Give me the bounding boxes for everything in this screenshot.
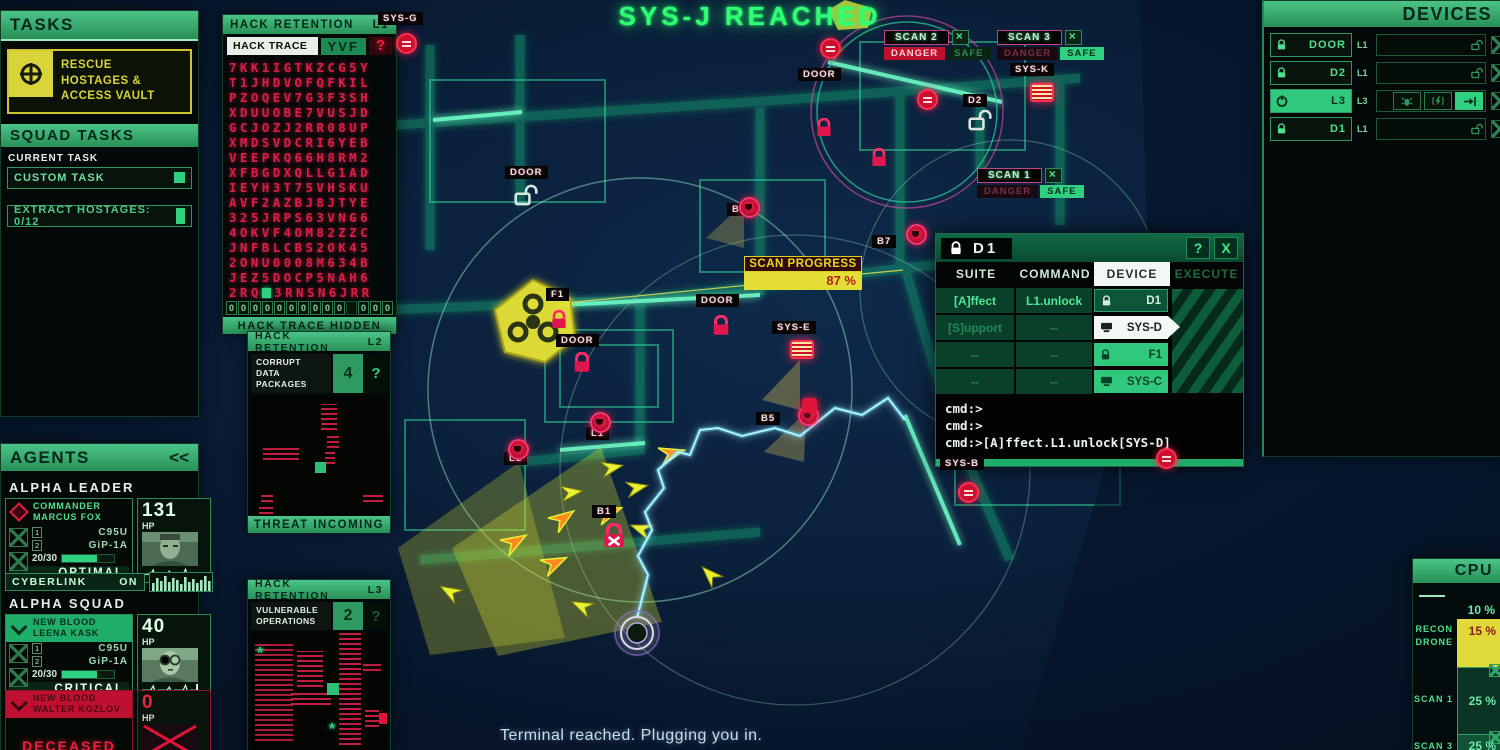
cpu-panel: CPU 10 % RECON DRONE 15 % SCAN 1 25 % SC… — [1412, 558, 1500, 750]
server-icon[interactable] — [790, 340, 814, 359]
current-task-label: CURRENT TASK — [1, 147, 198, 164]
map-label: B5 — [756, 412, 780, 425]
lock-icon[interactable] — [549, 310, 569, 330]
scan-marker-1: SCAN 1 DANGERSAFE — [977, 168, 1084, 198]
bug-action-button[interactable] — [1393, 92, 1421, 110]
lock-icon — [1276, 67, 1287, 79]
device-dialog: D1 ? X SUITE COMMAND DEVICE EXECUTE [A]f… — [935, 233, 1244, 467]
device-option-sys-d[interactable]: SYS-D — [1094, 316, 1168, 339]
close-icon[interactable] — [952, 30, 969, 45]
weapon-1[interactable]: C95U — [98, 527, 128, 538]
bug-icon — [1401, 96, 1413, 107]
close-icon[interactable] — [1065, 30, 1082, 45]
ammo-count: 20/30 — [32, 669, 57, 680]
scan-label: SCAN 1 — [977, 168, 1042, 183]
close-icon[interactable] — [1491, 120, 1500, 138]
ammo-bar — [61, 554, 115, 563]
bolt-icon — [1431, 95, 1445, 107]
task-progress-pip — [176, 208, 185, 224]
agent-status: DECEASED — [22, 738, 116, 750]
lock-icon — [1101, 295, 1112, 307]
vulnerable-marker: * — [329, 721, 335, 739]
extract-hostages-label: EXTRACT HOSTAGES: 0/12 — [14, 204, 176, 228]
lock-icon[interactable] — [814, 118, 834, 138]
alert-device-icon[interactable] — [396, 33, 417, 54]
scan-progress-value: 87 % — [744, 272, 862, 290]
suite-option[interactable]: [S]upport — [936, 315, 1014, 340]
safe-toggle[interactable]: SAFE — [1040, 185, 1083, 198]
close-icon[interactable] — [1491, 92, 1500, 110]
camera-icon[interactable] — [508, 439, 529, 460]
squad-rank-icon — [11, 618, 28, 635]
alert-device-icon[interactable] — [958, 482, 979, 503]
weapon-2[interactable]: GiP-1A — [89, 540, 128, 551]
cpu-idle-value: 10 % — [1457, 599, 1499, 617]
device-action-bar — [1376, 34, 1486, 56]
lock-icon — [1276, 39, 1287, 51]
alpha-leader-label: ALPHA LEADER — [9, 480, 134, 495]
safe-toggle[interactable]: SAFE — [1060, 47, 1103, 60]
cyberlink-histogram — [149, 572, 213, 592]
tab-suite[interactable]: SUITE — [936, 267, 1016, 281]
power-icon — [1276, 95, 1288, 107]
scan-label: SCAN 2 — [884, 30, 949, 45]
device-row-d2: D2 L1 — [1270, 61, 1500, 85]
extract-hostages-task[interactable]: EXTRACT HOSTAGES: 0/12 — [7, 205, 192, 227]
close-button[interactable]: X — [1214, 237, 1238, 259]
screen-icon — [1100, 376, 1113, 387]
trace-slot-row: 00 00 00 00 00 0 00 — [223, 299, 396, 317]
hp-value: 131 — [142, 500, 177, 521]
danger-toggle[interactable]: DANGER — [884, 47, 945, 60]
cpu-row-value: 25 % — [1457, 734, 1500, 750]
lock-icon — [1276, 123, 1287, 135]
open-lock-icon[interactable] — [1471, 67, 1483, 80]
close-icon[interactable] — [1491, 36, 1500, 54]
alpha-squad-label: ALPHA SQUAD — [9, 596, 126, 611]
suite-option[interactable]: -- — [936, 342, 1014, 367]
camera-icon[interactable] — [739, 197, 760, 218]
command-option[interactable]: -- — [1016, 369, 1092, 394]
hack-trace-value: YVF — [321, 38, 366, 55]
vulnerable-operations-label: VULNERABLE OPERATIONS — [251, 602, 331, 630]
agent-portrait — [142, 532, 198, 566]
cpu-header: CPU — [1413, 559, 1500, 583]
suite-option[interactable]: -- — [936, 369, 1014, 394]
plug-line-glow — [637, 398, 905, 618]
command-terminal: cmd:> cmd:> cmd:>[A]ffect.L1.unlock[SYS-… — [936, 396, 1243, 459]
hack-retention-l2-header: HACK RETENTION L2 — [248, 332, 390, 351]
scan-progress: SCAN PROGRESS 87 % — [744, 256, 862, 290]
open-lock-icon[interactable] — [1471, 39, 1483, 52]
scan-marker-3: SCAN 3 DANGERSAFE — [997, 30, 1104, 60]
hack-trace-grid: 7KK1IGTKZCG5YT1JHDVOFQFKIL PZOQEV7G3F3SH… — [223, 58, 396, 299]
agents-panel: AGENTS << ALPHA LEADER COMMANDERMARCUS F… — [0, 443, 199, 750]
tab-execute[interactable]: EXECUTE — [1170, 267, 1243, 281]
current-task-value: CUSTOM TASK — [14, 172, 105, 184]
map-label: DOOR — [696, 294, 739, 307]
hack-retention-label: HACK RETENTION — [255, 578, 368, 602]
level-badge: L3 — [368, 584, 383, 596]
dialog-titlebar: D1 ? X — [936, 234, 1243, 262]
agent-cell — [327, 683, 339, 695]
equip-slot[interactable] — [9, 552, 28, 571]
device-l3-button[interactable]: L3 — [1270, 89, 1352, 113]
open-lock-icon[interactable] — [968, 108, 992, 134]
main-task-item[interactable]: RESCUE HOSTAGES & ACCESS VAULT — [7, 49, 192, 114]
threat-incoming-footer: THREAT INCOMING — [248, 516, 390, 533]
tab-device[interactable]: DEVICE — [1094, 262, 1170, 286]
equip-slot[interactable] — [9, 644, 28, 663]
map-label: SYS-B — [940, 457, 984, 470]
alert-device-icon[interactable] — [917, 89, 938, 110]
device-row-d1: D1 L1 — [1270, 117, 1500, 141]
hack-retention-l3-header: HACK RETENTION L3 — [248, 580, 390, 599]
data-packet-cell — [315, 462, 326, 473]
hack-trace-row: HACK TRACE YVF ? — [223, 34, 396, 58]
enter-action-button[interactable] — [1455, 92, 1483, 110]
status-message: Terminal reached. Plugging you in. — [500, 727, 762, 745]
suite-option[interactable]: [A]ffect — [936, 288, 1014, 313]
agents-title: AGENTS — [10, 448, 90, 468]
device-level: L1 — [1357, 40, 1371, 50]
hack-retention-l1-panel: HACK RETENTION L1 HACK TRACE YVF ? 7KK1I… — [222, 14, 397, 334]
corrupt-data-grid — [251, 396, 387, 516]
map-label: F1 — [546, 288, 569, 301]
map-label: D2 — [963, 94, 987, 107]
device-level: L1 — [1357, 124, 1371, 134]
scan-label: SCAN 3 — [997, 30, 1062, 45]
main-task-label: RESCUE HOSTAGES & ACCESS VAULT — [53, 51, 190, 112]
agent-portrait — [142, 648, 198, 682]
agent-card-leena[interactable]: NEW BLOODLEENA KASK 1C95U 2GiP-1A 20/30 … — [5, 614, 211, 699]
device-action-bar — [1376, 118, 1486, 140]
execute-hatch-area — [1172, 289, 1243, 393]
objective-target-icon — [9, 51, 53, 97]
hp-label: HP — [142, 521, 155, 531]
open-lock-icon[interactable] — [1471, 123, 1483, 136]
ammo-count: 20/30 — [32, 553, 57, 564]
leader-rank-icon — [9, 502, 29, 522]
command-option[interactable]: -- — [1016, 342, 1092, 367]
corrupt-data-row: CORRUPT DATA PACKAGES 4 ? — [248, 351, 390, 396]
agent-card-marcus[interactable]: COMMANDERMARCUS FOX 1C95U 2GiP-1A 20/30 … — [5, 498, 211, 583]
lock-icon[interactable] — [710, 315, 732, 337]
lock-icon — [949, 241, 963, 256]
map-label: DOOR — [556, 334, 599, 347]
agent-card-walter[interactable]: NEW BLOODWALTER KOZLOV DECEASED 0 HP — [5, 690, 211, 750]
device-level: L3 — [1357, 96, 1371, 106]
help-button[interactable]: ? — [365, 602, 387, 630]
cpu-row-label: SCAN 1 — [1413, 667, 1453, 706]
page-title: SYS-J REACHED — [0, 1, 1500, 32]
vulnerable-marker: * — [257, 645, 263, 663]
device-option-sys-c[interactable]: SYS-C — [1094, 370, 1168, 393]
hack-trace-label: HACK TRACE — [227, 37, 318, 55]
cyberlink-state: ON — [119, 576, 138, 588]
lock-icon — [1100, 349, 1111, 361]
screen-icon — [1100, 322, 1113, 333]
camera-icon[interactable] — [590, 412, 611, 433]
close-icon[interactable] — [1491, 64, 1500, 82]
hack-retention-l2-panel: HACK RETENTION L2 CORRUPT DATA PACKAGES … — [247, 331, 391, 529]
cpu-row-label: RECON DRONE — [1413, 619, 1453, 648]
map-label: DOOR — [798, 68, 841, 81]
agent-portrait-deceased — [142, 724, 198, 750]
weapon-2[interactable]: GiP-1A — [89, 656, 128, 667]
ammo-bar — [61, 670, 115, 679]
scan-progress-label: SCAN PROGRESS — [744, 256, 862, 272]
map-label: SYS-K — [1010, 63, 1054, 76]
lock-icon[interactable] — [869, 148, 889, 168]
terminal-line: cmd:> — [945, 401, 1234, 418]
device-level: L1 — [1357, 68, 1371, 78]
hp-label: HP — [142, 713, 155, 723]
tab-command[interactable]: COMMAND — [1016, 267, 1094, 281]
hp-value: 0 — [142, 692, 154, 713]
device-node-icon[interactable] — [802, 398, 817, 413]
collapse-button[interactable]: << — [169, 448, 189, 468]
player-reticle[interactable] — [615, 611, 659, 655]
current-task-select[interactable]: CUSTOM TASK — [7, 167, 192, 189]
lock-x-icon[interactable] — [601, 523, 627, 549]
device-action-bar — [1376, 62, 1486, 84]
devices-panel: DEVICES DOOR L1 D2 L1 L3 — [1262, 0, 1500, 457]
terminal-line: cmd:> — [945, 418, 1234, 435]
corrupt-data-count: 4 — [333, 354, 363, 393]
power-surge-action-button[interactable] — [1424, 92, 1452, 110]
danger-toggle[interactable]: DANGER — [977, 185, 1038, 198]
edit-icon[interactable] — [174, 172, 185, 183]
map-label: DOOR — [505, 166, 548, 179]
alert-device-icon[interactable] — [1156, 448, 1177, 469]
threat-cell — [379, 713, 387, 724]
danger-toggle[interactable]: DANGER — [997, 47, 1058, 60]
help-button[interactable]: ? — [365, 354, 387, 393]
command-option[interactable]: -- — [1016, 315, 1092, 340]
level-badge: L2 — [368, 336, 383, 348]
device-row-l3: L3 L3 — [1270, 89, 1500, 113]
map-label: B1 — [592, 505, 616, 518]
squad-rank-icon — [11, 694, 28, 711]
server-icon[interactable] — [1030, 83, 1054, 102]
camera-icon[interactable] — [906, 224, 927, 245]
device-option-f1[interactable]: F1 — [1094, 343, 1168, 366]
dialog-grid: [A]ffect [S]upport -- -- L1.unlock -- --… — [936, 286, 1243, 396]
device-door-button[interactable]: DOOR — [1270, 33, 1352, 57]
equip-slot[interactable] — [9, 528, 28, 547]
map-label: B7 — [872, 235, 896, 248]
vulnerable-operations-grid: * * — [251, 633, 387, 750]
device-option-d1[interactable]: D1 — [1094, 289, 1168, 312]
hp-label: HP — [142, 637, 155, 647]
device-d1-button[interactable]: D1 — [1270, 117, 1352, 141]
device-action-bar — [1376, 90, 1486, 112]
enter-arrow-icon — [1463, 96, 1476, 107]
close-icon[interactable] — [1045, 168, 1062, 183]
alert-device-icon[interactable] — [820, 38, 841, 59]
device-d2-button[interactable]: D2 — [1270, 61, 1352, 85]
dialog-title: D1 — [973, 240, 998, 257]
vulnerable-operations-row: VULNERABLE OPERATIONS 2 ? — [248, 599, 390, 633]
cpu-row-scan-3: SCAN 3 25 % — [1413, 734, 1500, 750]
squad-tasks-header: SQUAD TASKS — [1, 124, 198, 147]
cpu-row-value: 15 % — [1457, 619, 1500, 667]
trace-found-cell — [262, 288, 271, 298]
open-lock-icon[interactable] — [514, 183, 538, 209]
weapon-1[interactable]: C95U — [98, 643, 128, 654]
help-button[interactable]: ? — [1186, 237, 1210, 259]
cpu-tick — [1419, 595, 1445, 597]
hack-retention-label: HACK RETENTION — [255, 330, 368, 354]
cpu-idle-row: 10 % — [1413, 599, 1499, 617]
equip-slot[interactable] — [9, 668, 28, 687]
safe-toggle[interactable]: SAFE — [947, 47, 990, 60]
cpu-row-recon-drone: RECON DRONE 15 % — [1413, 619, 1500, 667]
lock-icon[interactable] — [571, 352, 593, 374]
scan-marker-2: SCAN 2 DANGERSAFE — [884, 30, 991, 60]
tasks-panel: TASKS RESCUE HOSTAGES & ACCESS VAULT SQU… — [0, 10, 199, 417]
agents-header: AGENTS << — [1, 444, 198, 471]
hack-retention-l3-panel: HACK RETENTION L3 VULNERABLE OPERATIONS … — [247, 579, 391, 750]
help-button[interactable]: ? — [369, 37, 392, 55]
device-row-door: DOOR L1 — [1270, 33, 1500, 57]
command-option[interactable]: L1.unlock — [1016, 288, 1092, 313]
corrupt-data-label: CORRUPT DATA PACKAGES — [251, 354, 331, 393]
vulnerable-operations-count: 2 — [333, 602, 363, 630]
cyberlink-label: CYBERLINK — [12, 576, 87, 588]
dialog-tabs: SUITE COMMAND DEVICE EXECUTE — [936, 262, 1243, 286]
terminal-line: cmd:>[A]ffect.L1.unlock[SYS-D] — [945, 435, 1234, 452]
hp-value: 40 — [142, 616, 165, 637]
map-label: SYS-E — [772, 321, 816, 334]
game-screen: SYS-G SYS-K D2 DOOR B5 B7 DOOR SYS-E F1 … — [0, 0, 1500, 750]
cpu-row-label: SCAN 3 — [1413, 734, 1453, 750]
cyberlink-row[interactable]: CYBERLINKON — [5, 572, 213, 592]
